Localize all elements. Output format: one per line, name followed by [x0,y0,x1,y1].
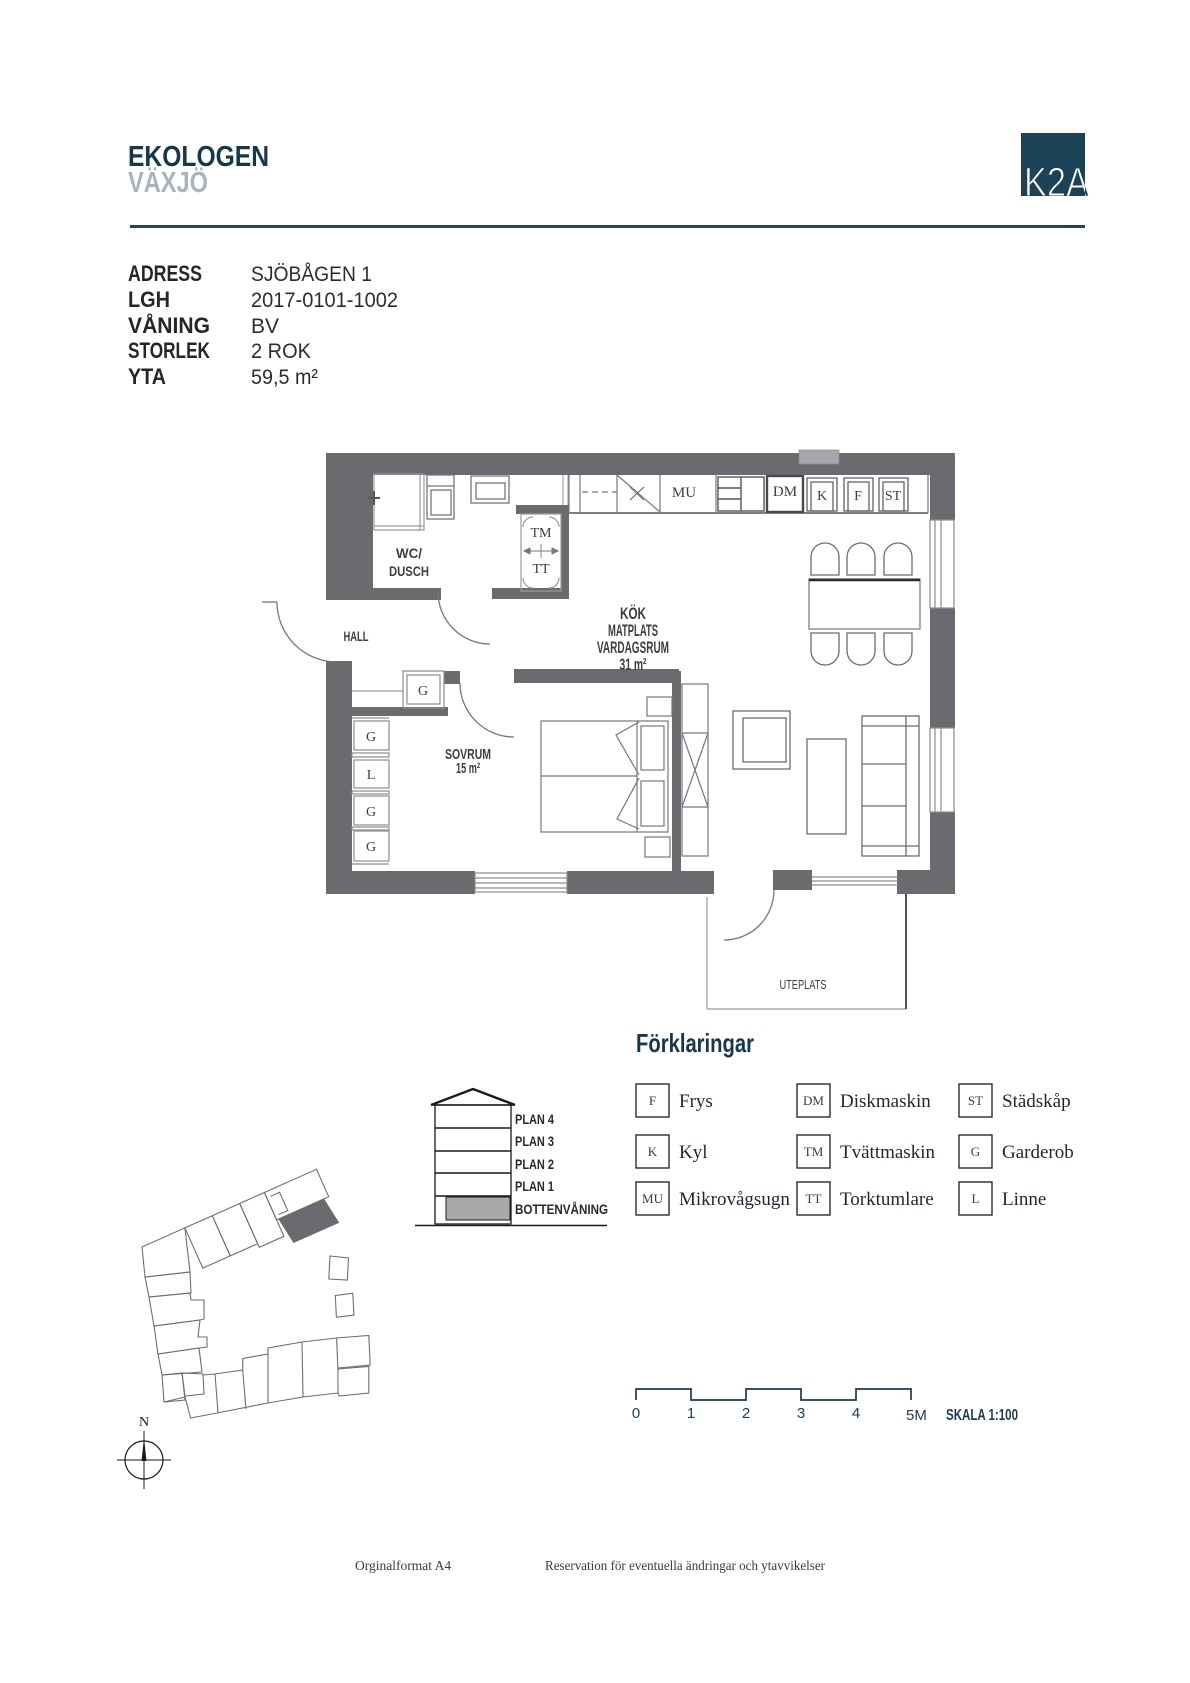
svg-text:G: G [366,730,376,745]
svg-text:YTA: YTA [128,364,166,389]
svg-text:3: 3 [797,1405,805,1422]
svg-text:DM: DM [803,1093,824,1108]
svg-text:BOTTENVÅNING: BOTTENVÅNING [515,1201,608,1217]
svg-text:ST: ST [885,489,902,504]
svg-text:TM: TM [531,526,553,541]
svg-text:BV: BV [251,315,279,338]
svg-text:ST: ST [968,1093,983,1108]
svg-text:4: 4 [852,1405,860,1422]
svg-text:HALL: HALL [344,628,369,644]
svg-text:Linne: Linne [1002,1189,1046,1210]
svg-text:F: F [854,489,862,504]
svg-text:G: G [366,805,376,820]
svg-text:N: N [139,1415,149,1430]
svg-text:Diskmaskin: Diskmaskin [840,1091,931,1112]
svg-text:2017-0101-1002: 2017-0101-1002 [251,289,398,312]
svg-text:G: G [971,1144,980,1159]
svg-text:Mikrovågsugn: Mikrovågsugn [679,1189,790,1210]
svg-text:K2A: K2A [1024,159,1090,205]
svg-text:TM: TM [804,1144,824,1159]
svg-text:PLAN 1: PLAN 1 [515,1178,554,1194]
svg-text:ADRESS: ADRESS [128,261,202,286]
svg-text:0: 0 [632,1405,640,1422]
svg-text:PLAN 3: PLAN 3 [515,1133,554,1149]
svg-text:LGH: LGH [128,287,170,312]
svg-text:PLAN 4: PLAN 4 [515,1111,554,1127]
svg-text:SKALA 1:100: SKALA 1:100 [946,1407,1018,1424]
svg-text:Tvättmaskin: Tvättmaskin [840,1142,935,1163]
svg-text:2 ROK: 2 ROK [251,340,311,363]
svg-text:Förklaringar: Förklaringar [636,1028,754,1058]
svg-text:PLAN 2: PLAN 2 [515,1156,554,1172]
svg-text:L: L [972,1191,980,1206]
svg-text:Garderob: Garderob [1002,1142,1074,1163]
svg-text:SJÖBÅGEN 1: SJÖBÅGEN 1 [251,263,372,286]
svg-text:59,5 m²: 59,5 m² [251,366,318,389]
svg-text:WC/: WC/ [396,545,422,561]
svg-text:UTEPLATS: UTEPLATS [780,977,827,992]
svg-text:Reservation för eventuella änd: Reservation för eventuella ändringar och… [545,1558,825,1573]
svg-text:31 m²: 31 m² [620,655,647,674]
svg-text:MU: MU [672,485,696,501]
svg-text:L: L [367,768,376,783]
svg-text:K: K [817,489,827,504]
svg-text:5M: 5M [906,1407,927,1424]
svg-text:TT: TT [532,562,550,577]
svg-text:VÄXJÖ: VÄXJÖ [128,166,208,199]
svg-text:Städskåp: Städskåp [1002,1091,1071,1112]
svg-text:2: 2 [742,1405,750,1422]
svg-text:DM: DM [773,484,797,500]
svg-text:STORLEK: STORLEK [128,338,210,363]
svg-text:G: G [418,684,428,699]
svg-text:MU: MU [642,1191,664,1206]
svg-text:K: K [648,1144,658,1159]
svg-text:TT: TT [806,1191,822,1206]
svg-text:G: G [366,840,376,855]
svg-text:Frys: Frys [679,1091,713,1112]
svg-text:DUSCH: DUSCH [389,563,429,579]
svg-text:1: 1 [687,1405,695,1422]
svg-text:15 m²: 15 m² [456,760,480,777]
svg-text:Kyl: Kyl [679,1142,708,1163]
svg-text:Orginalformat A4: Orginalformat A4 [355,1558,451,1573]
svg-text:Torktumlare: Torktumlare [840,1189,934,1210]
svg-text:VÅNING: VÅNING [128,312,210,338]
svg-text:F: F [649,1093,656,1108]
